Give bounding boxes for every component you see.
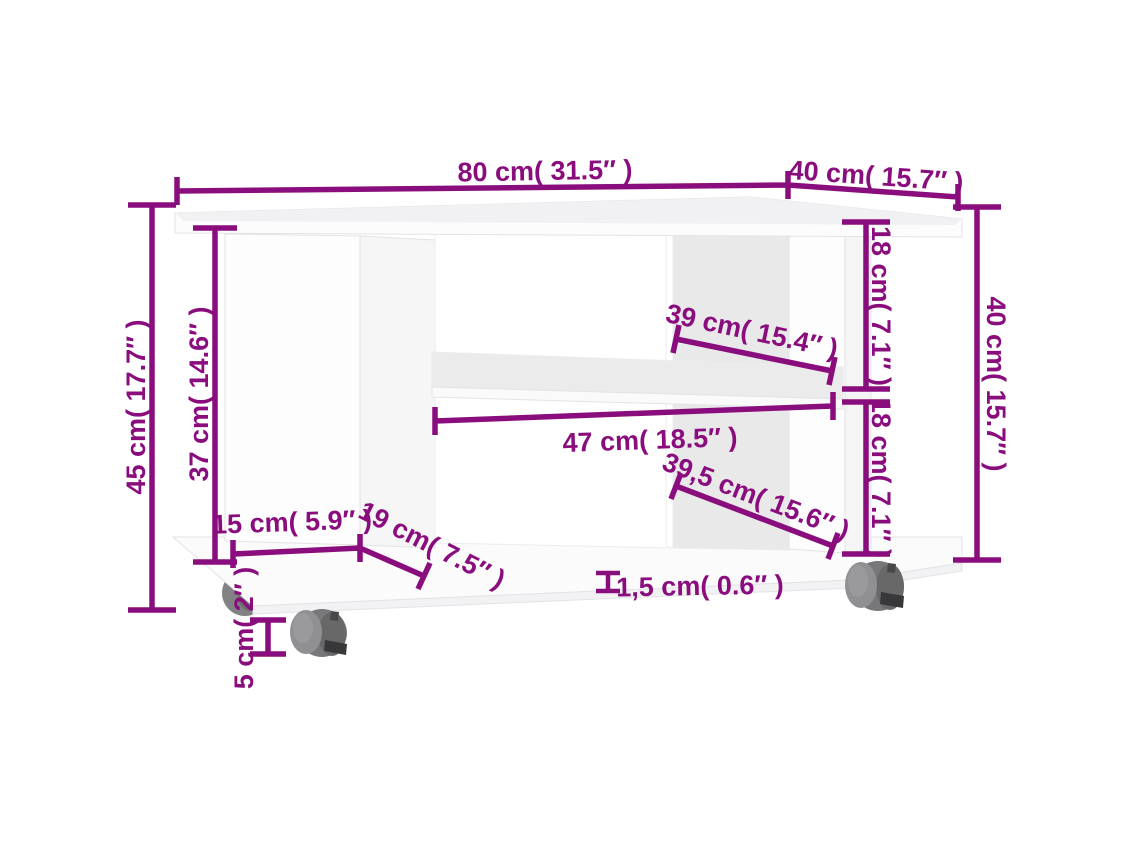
dim-panel-thickness-label: 1,5 cm( 0.6″ ): [616, 570, 784, 603]
dim-caster-height-label: 5 cm( 2″ ): [229, 567, 259, 689]
dim-upper-opening-label: 18 cm( 7.1″ ): [866, 226, 896, 386]
caster-right-icon: [845, 561, 904, 611]
dim-left-panel-width-label: 15 cm( 5.9″ ): [212, 504, 373, 540]
left-panel: [225, 234, 435, 548]
tv-stand-diagram: 80 cm( 31.5″ ) 40 cm( 15.7″ ) 40 cm( 15.…: [0, 0, 1130, 847]
dim-top-depth-label: 40 cm( 15.7″ ): [788, 155, 965, 197]
product-dimension-image: 80 cm( 31.5″ ) 40 cm( 15.7″ ) 40 cm( 15.…: [0, 0, 1130, 847]
dim-panel-thickness: 1,5 cm( 0.6″ ): [596, 570, 784, 603]
dim-total-height-label: 45 cm( 17.7″ ): [121, 319, 151, 494]
dim-body-height: 40 cm( 15.7″ ): [953, 207, 1011, 560]
caster-front-left-icon: [290, 609, 347, 657]
dim-left-inner-height-label: 37 cm( 14.6″ ): [184, 306, 214, 481]
dim-inner-width-label: 47 cm( 18.5″ ): [562, 422, 738, 458]
dim-lower-opening-label: 18 cm( 7.1″ ): [866, 398, 896, 558]
dim-total-height: 45 cm( 17.7″ ): [121, 205, 176, 610]
dim-top-width: 80 cm( 31.5″ ): [177, 154, 788, 205]
top-board: [175, 197, 962, 237]
dim-top-depth: 40 cm( 15.7″ ): [788, 155, 965, 211]
dim-body-height-label: 40 cm( 15.7″ ): [981, 296, 1011, 471]
dim-top-width-label: 80 cm( 31.5″ ): [457, 154, 633, 187]
